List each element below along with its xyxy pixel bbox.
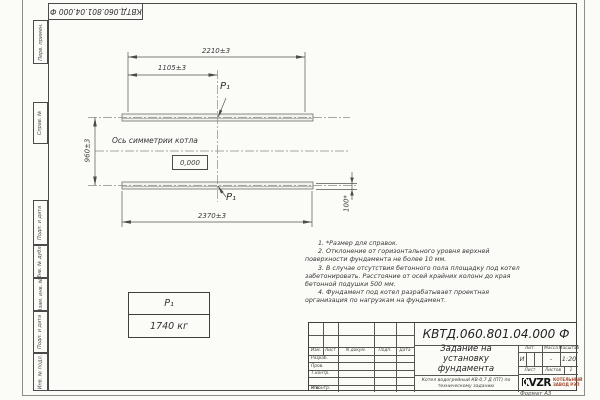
tb-row-tkontr: Т.контр. (311, 371, 338, 376)
weight-table: P₁ 1740 кг (128, 292, 210, 338)
tb-doc-number: КВТД.060.801.04.000 Ф (414, 323, 578, 345)
tb-col-list: Лист (323, 347, 338, 355)
note-1: 1. *Размер для справок. (305, 240, 527, 248)
tb-product-name-text: Котел водогрейный КВ-0,7 Д (ПТ) по техни… (420, 378, 512, 390)
tb-col-izm: Изм. (309, 347, 323, 355)
axis-of-symmetry-label: Ось симметрии котла (112, 136, 198, 145)
technical-notes: 1. *Размер для справок. 2. Отклонение от… (305, 240, 527, 305)
tb-sheet-header: Лист (518, 366, 542, 374)
tb-row-prov: Пров. (311, 364, 338, 369)
dim-bottom-overall: 2370±3 (172, 211, 252, 220)
tb-sheets-value: 1 (564, 366, 578, 374)
tb-lit-value: И (518, 352, 526, 366)
tb-sheets-header: Листов (542, 366, 564, 374)
title-block: Изм. Лист N докум. Подп. Дата Разраб. Пр… (308, 322, 577, 391)
load-point-label-bottom: P₁ (226, 192, 236, 203)
dim-ref-height: 100* (342, 189, 351, 219)
tb-mass-header: Масса (542, 345, 560, 352)
tb-scale-header: Масштаб (560, 345, 578, 352)
level-mark-value: 0,000 (180, 159, 200, 167)
tb-row-razrab: Разраб. (311, 356, 338, 361)
dim-top-overall: 2210±3 (176, 46, 256, 55)
tb-logo-area: KVZR КОТЕЛЬНЫЙ ЗАВОД РЭП (518, 374, 578, 392)
company-name-line2: ЗАВОД РЭП (553, 383, 582, 388)
weight-table-value: 1740 кг (129, 315, 209, 337)
load-point-label-top: P₁ (220, 81, 230, 92)
company-name: КОТЕЛЬНЫЙ ЗАВОД РЭП (553, 378, 582, 387)
tb-mass-value: - (542, 352, 560, 366)
note-4: 4. Фундамент под котел разрабатывает про… (305, 289, 527, 305)
tb-product-name: Котел водогрейный КВ-0,7 Д (ПТ) по техни… (414, 375, 518, 392)
weight-table-header: P₁ (129, 293, 209, 315)
tb-col-data: Дата (396, 347, 414, 355)
tb-lit-header: Лит. (518, 345, 542, 352)
tb-col-podp: Подп. (374, 347, 396, 355)
tb-doc-title-text: Задание на установку фундамента (430, 345, 502, 374)
tb-col-ndokum: N докум. (338, 347, 374, 355)
dim-top-half: 1105±3 (132, 63, 212, 72)
dim-side-height: 960±3 (83, 131, 92, 171)
tb-doc-title: Задание на установку фундамента (414, 345, 518, 375)
note-3: 3. В случае отсутствия бетонного пола пл… (305, 265, 527, 290)
format-label: Формат А3 (520, 391, 551, 397)
tb-scale-value: 1:20 (560, 352, 578, 366)
note-2: 2. Отклонение от горизонтального уровня … (305, 248, 527, 264)
tb-row-utv: Утв. (311, 386, 338, 391)
level-mark-box: 0,000 (172, 155, 208, 170)
drawing-sheet: КВТД.060.801.04.000 Ф Перв. примен. Спра… (0, 0, 600, 400)
